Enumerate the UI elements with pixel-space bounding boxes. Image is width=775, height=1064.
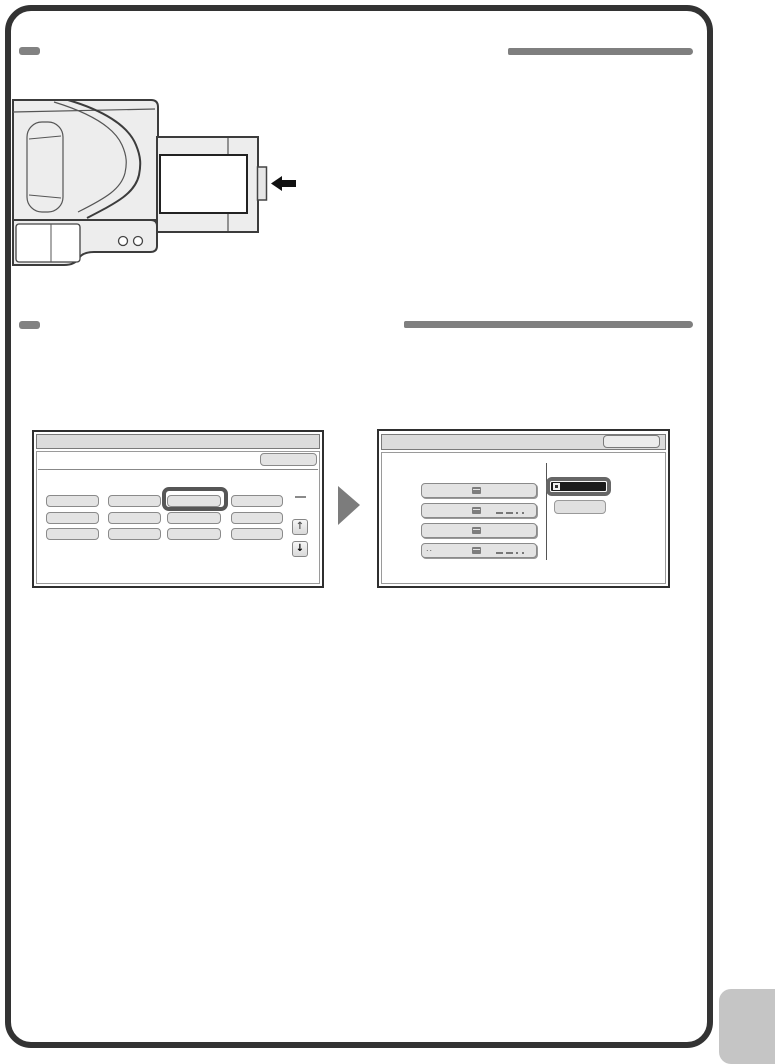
home-screen-button[interactable] — [231, 512, 283, 524]
redacted-text-mark — [522, 552, 524, 554]
page-corner-tab — [719, 989, 775, 1064]
title-bar-button[interactable] — [603, 435, 660, 448]
home-screen-button[interactable] — [108, 528, 161, 540]
home-screen-button[interactable] — [46, 528, 99, 540]
home-screen-button[interactable] — [108, 512, 161, 524]
section-heading-bar — [508, 48, 693, 55]
screen-title-bar — [36, 434, 320, 449]
flow-arrow-icon — [338, 486, 360, 525]
touch-screen-home: ↑ ↓ — [32, 430, 324, 588]
usb-device — [258, 167, 267, 200]
redacted-text-mark — [506, 552, 513, 554]
paper-output-tray — [27, 122, 63, 212]
section-marker — [19, 47, 40, 55]
redacted-text-mark — [496, 552, 503, 554]
section-marker — [19, 321, 40, 329]
file-list-item[interactable] — [421, 503, 537, 518]
divider-line — [38, 469, 318, 470]
file-list-item[interactable]: .. — [421, 543, 537, 558]
home-top-button[interactable] — [260, 453, 317, 466]
redacted-text-mark — [506, 512, 513, 514]
insert-arrow-icon — [271, 176, 296, 191]
screen-content — [381, 452, 666, 584]
redacted-text-mark — [522, 512, 524, 514]
indicator-light — [119, 237, 128, 246]
up-arrow-icon: ↑ — [296, 522, 304, 532]
home-screen-button[interactable] — [46, 495, 99, 507]
folder-icon — [472, 527, 481, 534]
file-list-item[interactable] — [421, 483, 537, 498]
file-list-item[interactable] — [421, 523, 537, 538]
scroll-up-button[interactable]: ↑ — [292, 519, 308, 535]
scroll-down-button[interactable]: ↓ — [292, 541, 308, 557]
folder-icon — [472, 547, 481, 554]
redacted-text-mark — [516, 512, 518, 514]
down-arrow-icon: ↓ — [296, 544, 304, 554]
file-action-button[interactable] — [554, 500, 606, 514]
selection-highlight — [162, 487, 228, 511]
divider-line — [546, 463, 547, 560]
selected-file-item[interactable] — [550, 481, 607, 492]
item-prefix: .. — [426, 544, 433, 553]
home-screen-button[interactable] — [108, 495, 161, 507]
home-screen-button[interactable] — [46, 512, 99, 524]
section-heading-bar — [404, 321, 693, 328]
redacted-text-mark — [496, 512, 503, 514]
panel-display — [160, 155, 247, 213]
redacted-text-mark — [516, 552, 518, 554]
home-screen-button[interactable] — [231, 528, 283, 540]
paper-tray — [16, 224, 80, 262]
printer-illustration — [10, 95, 302, 275]
home-screen-button[interactable] — [167, 512, 221, 524]
home-screen-button[interactable] — [231, 495, 283, 507]
touch-screen-file-select: .. — [377, 429, 670, 588]
selection-highlight — [546, 477, 611, 496]
home-screen-button[interactable] — [167, 528, 221, 540]
indicator-light — [134, 237, 143, 246]
page-indicator — [295, 496, 306, 498]
image-file-icon — [553, 483, 560, 490]
folder-icon — [472, 487, 481, 494]
folder-icon — [472, 507, 481, 514]
